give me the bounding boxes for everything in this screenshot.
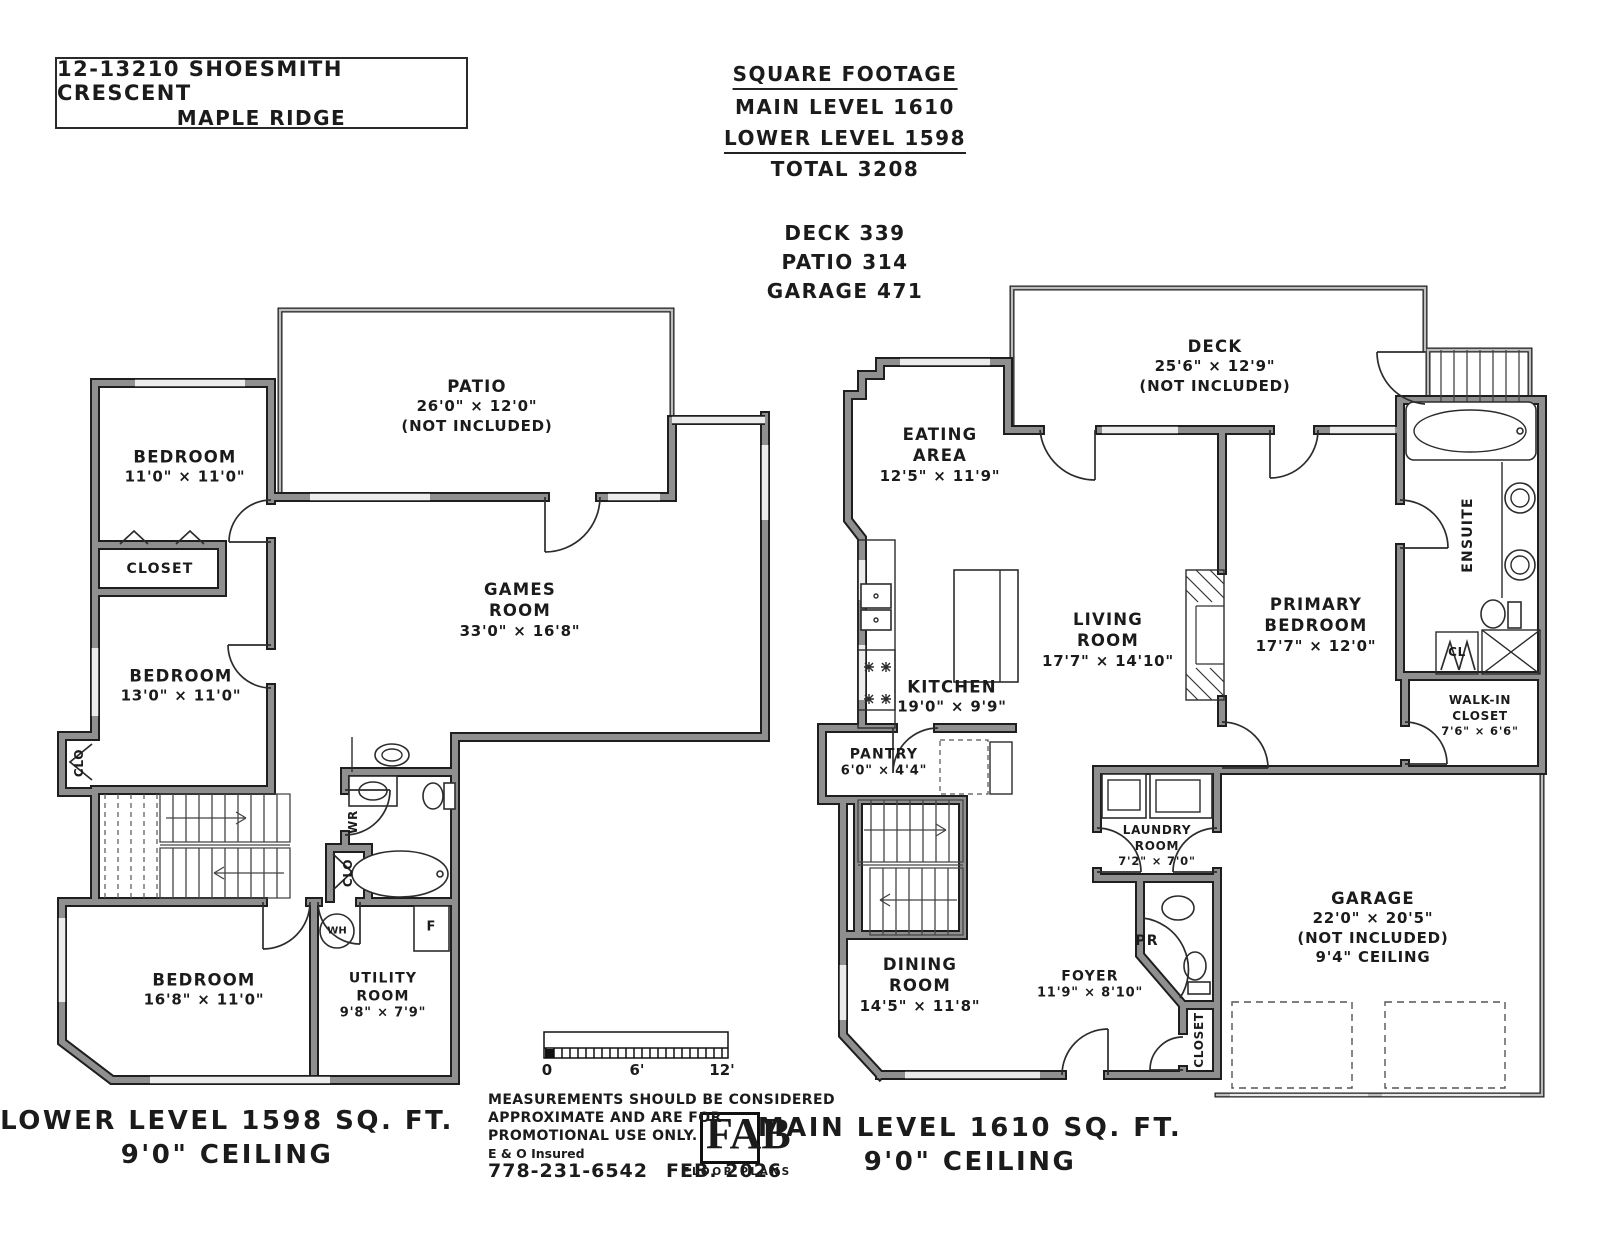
room-label-utility: UTILITY ROOM 9'8" × 7'9" xyxy=(340,969,426,1022)
room-label-pr: PR xyxy=(1135,932,1158,950)
main-caption-1: MAIN LEVEL 1610 SQ. FT. xyxy=(758,1113,1182,1143)
room-label-walkin-closet: WALK-IN CLOSET 7'6" × 6'6" xyxy=(1441,693,1518,739)
sqft-deck: DECK 339 xyxy=(784,221,905,245)
room-label-bedroom3: BEDROOM 16'8" × 11'0" xyxy=(144,970,265,1011)
room-label-dining-room: DINING ROOM 14'5" × 11'8" xyxy=(860,954,981,1016)
sqft-main: MAIN LEVEL 1610 xyxy=(735,95,955,119)
room-label-closet-lower: CLOSET xyxy=(127,560,194,578)
sqft-patio: PATIO 314 xyxy=(781,250,908,274)
label-water-heater: WH xyxy=(327,925,346,938)
room-label-clo1: CLO xyxy=(72,749,88,777)
fab-logo-subtitle: FLOOR PLANS xyxy=(682,1166,791,1178)
main-caption-2: 9'0" CEILING xyxy=(864,1147,1077,1177)
scale-bar xyxy=(544,1032,728,1058)
room-label-patio: PATIO 26'0" × 12'0" (NOT INCLUDED) xyxy=(401,376,552,436)
scale-label-12: 12' xyxy=(709,1061,734,1079)
address-line2: MAPLE RIDGE xyxy=(177,106,346,130)
room-label-living-room: LIVING ROOM 17'7" × 14'10" xyxy=(1042,609,1174,671)
garage-stall-right xyxy=(1385,1002,1505,1088)
room-label-primary-bedroom: PRIMARY BEDROOM 17'7" × 12'0" xyxy=(1256,594,1377,656)
lower-stairs xyxy=(105,794,290,898)
eo-insured-line: E & O Insured xyxy=(488,1146,585,1161)
label-furnace: F xyxy=(427,920,436,937)
scale-label-6: 6' xyxy=(629,1061,644,1079)
sqft-title: SQUARE FOOTAGE xyxy=(733,62,958,90)
sqft-garage: GARAGE 471 xyxy=(767,279,924,303)
room-label-kitchen: KITCHEN 19'0" × 9'9" xyxy=(897,677,1007,718)
kitchen-island-icon xyxy=(954,570,1018,682)
ensuite-toilet-icon xyxy=(1481,600,1505,628)
disclaimer-line2: APPROXIMATE AND ARE FOR xyxy=(488,1110,722,1126)
address-box: 12-13210 SHOESMITH CRESCENT MAPLE RIDGE xyxy=(55,57,468,129)
room-label-cl: CL xyxy=(1448,645,1466,661)
room-label-pantry: PANTRY 6'0" × 4'4" xyxy=(841,745,927,780)
room-label-deck: DECK 25'6" × 12'9" (NOT INCLUDED) xyxy=(1139,336,1290,396)
room-label-garage: GARAGE 22'0" × 20'5" (NOT INCLUDED) 9'4"… xyxy=(1297,888,1448,968)
room-label-bedroom2: BEDROOM 13'0" × 11'0" xyxy=(121,666,242,707)
room-label-foyer-closet: CLOSET xyxy=(1192,1012,1208,1067)
room-label-foyer: FOYER 11'9" × 8'10" xyxy=(1037,967,1143,1002)
room-label-bedroom1: BEDROOM 11'0" × 11'0" xyxy=(125,447,246,488)
room-label-laundry: LAUNDRY ROOM 7'2" × 7'0" xyxy=(1118,823,1195,869)
lower-caption-1: LOWER LEVEL 1598 SQ. FT. xyxy=(0,1106,454,1136)
lower-caption-2: 9'0" CEILING xyxy=(121,1140,334,1170)
fab-logo: FAB xyxy=(706,1108,791,1159)
address-line1: 12-13210 SHOESMITH CRESCENT xyxy=(57,57,466,105)
pr-sink-icon xyxy=(1162,896,1194,920)
sqft-total: TOTAL 3208 xyxy=(771,157,920,181)
room-label-wr: WR xyxy=(346,810,362,834)
room-label-clo2: CLO xyxy=(341,859,357,887)
phone-number: 778-231-6542 xyxy=(488,1160,648,1182)
fridge-icon xyxy=(940,740,988,794)
room-label-ensuite: ENSUITE xyxy=(1459,497,1477,572)
scale-label-0: 0 xyxy=(542,1061,552,1079)
disclaimer-line3: PROMOTIONAL USE ONLY. xyxy=(488,1128,698,1144)
room-label-games-room: GAMES ROOM 33'0" × 16'8" xyxy=(460,579,581,641)
garage-stall-left xyxy=(1232,1002,1352,1088)
sqft-lower: LOWER LEVEL 1598 xyxy=(724,126,966,154)
room-label-eating-area: EATING AREA 12'5" × 11'9" xyxy=(880,424,1001,486)
disclaimer-line1: MEASUREMENTS SHOULD BE CONSIDERED xyxy=(488,1092,835,1108)
